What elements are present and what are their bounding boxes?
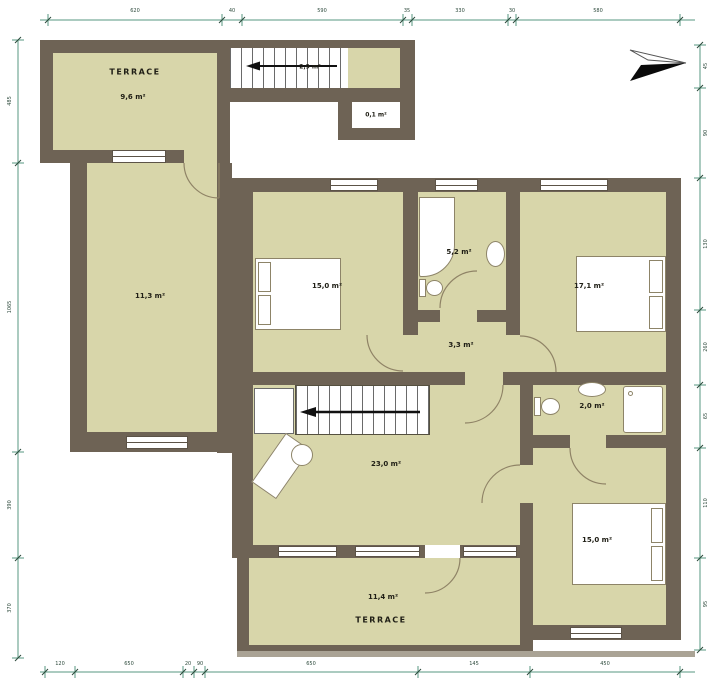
wall (606, 435, 681, 448)
terrace-bottom-fill (245, 558, 520, 645)
window (278, 546, 337, 557)
wall (217, 40, 415, 48)
wall (232, 178, 253, 558)
chair (291, 444, 313, 466)
wall (70, 163, 87, 452)
room-name: TERRACE (355, 616, 406, 625)
wall (666, 178, 681, 640)
wall (403, 310, 440, 322)
dim-label: 650 (306, 661, 316, 667)
dim-label: 30 (509, 8, 515, 14)
dim-label: 145 (469, 661, 479, 667)
pillow (651, 546, 663, 581)
dim-label: 580 (593, 8, 603, 14)
wall (520, 435, 570, 448)
dim-label: 45 (703, 63, 709, 69)
room-area: 2,9 m² (299, 64, 321, 71)
dim-label: 95 (703, 601, 709, 607)
dim-label: 35 (404, 8, 410, 14)
ground-line (237, 651, 695, 657)
dim-label: 110 (703, 498, 709, 508)
room-area: 3,3 m² (448, 341, 473, 349)
sink (486, 241, 505, 267)
wall (400, 40, 415, 140)
pillow (649, 296, 663, 329)
pillow (651, 508, 663, 543)
room-area: 11,3 m² (135, 292, 165, 300)
room-area: 23,0 m² (371, 460, 401, 468)
toilet (534, 397, 541, 416)
toilet (419, 279, 426, 297)
wall (520, 385, 533, 465)
room-area: 15,0 m² (582, 536, 612, 544)
north-arrow (630, 50, 686, 81)
room-area: 11,4 m² (368, 593, 398, 601)
room-area: 5,2 m² (446, 248, 471, 256)
toilet-bowl (426, 280, 443, 296)
wall (520, 558, 533, 652)
wall (217, 163, 232, 453)
sink (578, 382, 606, 397)
dim-label: 40 (229, 8, 235, 14)
stair-landing-fill (348, 48, 400, 88)
staircase-top (230, 48, 348, 88)
cupboard (254, 388, 294, 434)
dim-label: 485 (7, 96, 13, 106)
window (435, 179, 478, 191)
dim-label: 1065 (7, 301, 13, 314)
dim-label: 120 (55, 661, 65, 667)
dim-label: 450 (600, 661, 610, 667)
wall (506, 192, 520, 335)
dim-label: 330 (455, 8, 465, 14)
wall (40, 40, 53, 163)
room-area: 9,6 m² (120, 93, 145, 101)
wall (40, 150, 112, 163)
window (355, 546, 420, 557)
room-area: 17,1 m² (574, 282, 604, 290)
dim-label: 370 (7, 603, 13, 613)
wall (240, 372, 465, 385)
room-area: 2,0 m² (579, 402, 604, 410)
room-area: 15,0 m² (312, 282, 342, 290)
dim-label: 65 (703, 413, 709, 419)
dim-label: 90 (197, 661, 203, 667)
staircase-living (295, 385, 430, 435)
wall (237, 558, 249, 652)
room-area: 0,1 m² (365, 112, 387, 119)
wall (40, 40, 230, 53)
dim-label: 260 (703, 342, 709, 352)
dim-label: 90 (703, 130, 709, 136)
toilet-bowl (541, 398, 560, 415)
wall (230, 88, 400, 102)
dim-label: 650 (124, 661, 134, 667)
room-name: TERRACE (109, 68, 160, 77)
pillow (258, 262, 271, 292)
shower-drain (628, 391, 633, 396)
dim-label: 20 (185, 661, 191, 667)
pillow (258, 295, 271, 325)
window (126, 436, 188, 449)
floor-plan: TERRACE 9,6 m² 2,9 m² 0,1 m² 11,3 m² 15,… (0, 0, 714, 690)
window (112, 150, 166, 163)
window (570, 627, 622, 639)
window (330, 179, 378, 191)
wall (166, 150, 184, 163)
dim-label: 620 (130, 8, 140, 14)
wall (217, 40, 230, 168)
dim-label: 390 (7, 500, 13, 510)
dim-label: 130 (703, 239, 709, 249)
dim-label: 590 (317, 8, 327, 14)
window (540, 179, 608, 191)
wall (338, 128, 415, 140)
wall (338, 102, 352, 128)
window (463, 546, 517, 557)
terrace-door-gap (184, 150, 219, 163)
pillow (649, 260, 663, 293)
